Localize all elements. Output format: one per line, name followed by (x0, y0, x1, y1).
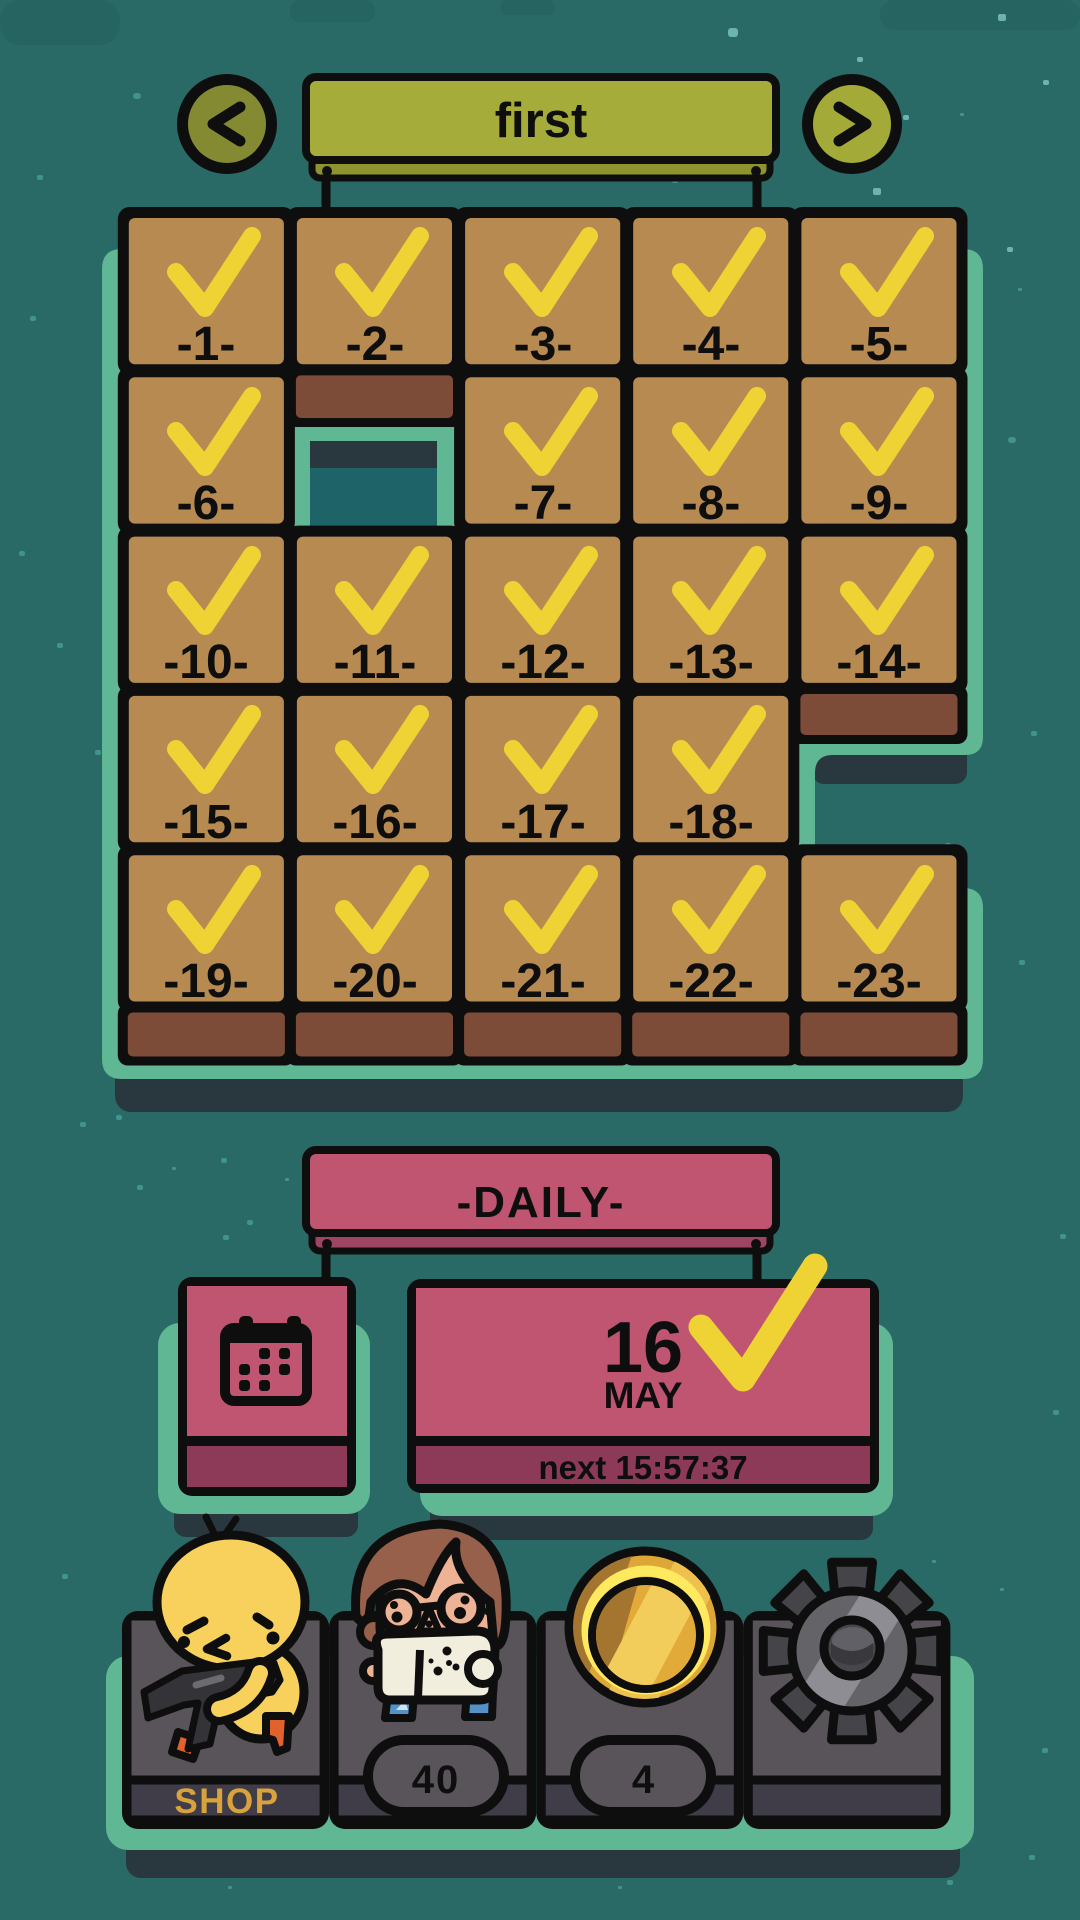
svg-text:-8-: -8- (682, 477, 741, 530)
svg-text:-11-: -11- (334, 636, 417, 689)
svg-text:-15-: -15- (163, 796, 248, 849)
svg-text:-17-: -17- (500, 796, 585, 849)
svg-text:4: 4 (632, 1758, 655, 1802)
svg-text:40: 40 (412, 1758, 461, 1802)
svg-text:-7-: -7- (514, 477, 573, 530)
svg-text:-1-: -1- (177, 318, 236, 371)
svg-text:-21-: -21- (500, 955, 585, 1008)
svg-text:-22-: -22- (668, 955, 753, 1008)
svg-text:SHOP: SHOP (174, 1782, 279, 1821)
svg-text:-19-: -19- (163, 955, 248, 1008)
svg-text:-10-: -10- (163, 636, 248, 689)
svg-text:-20-: -20- (332, 955, 417, 1008)
svg-text:-14-: -14- (836, 636, 921, 689)
svg-text:-3-: -3- (514, 318, 573, 371)
svg-text:MAY: MAY (604, 1375, 683, 1416)
svg-text:-23-: -23- (836, 955, 921, 1008)
svg-text:-6-: -6- (177, 477, 236, 530)
svg-text:-4-: -4- (682, 318, 741, 371)
svg-text:-18-: -18- (668, 796, 753, 849)
svg-text:first: first (495, 94, 588, 148)
svg-text:-12-: -12- (500, 636, 585, 689)
svg-text:-13-: -13- (668, 636, 753, 689)
svg-text:-5-: -5- (850, 318, 909, 371)
svg-text:-DAILY-: -DAILY- (457, 1178, 626, 1227)
svg-text:-16-: -16- (332, 796, 417, 849)
svg-text:-9-: -9- (850, 477, 909, 530)
svg-text:next 15:57:37: next 15:57:37 (538, 1449, 747, 1486)
svg-text:-2-: -2- (346, 318, 405, 371)
